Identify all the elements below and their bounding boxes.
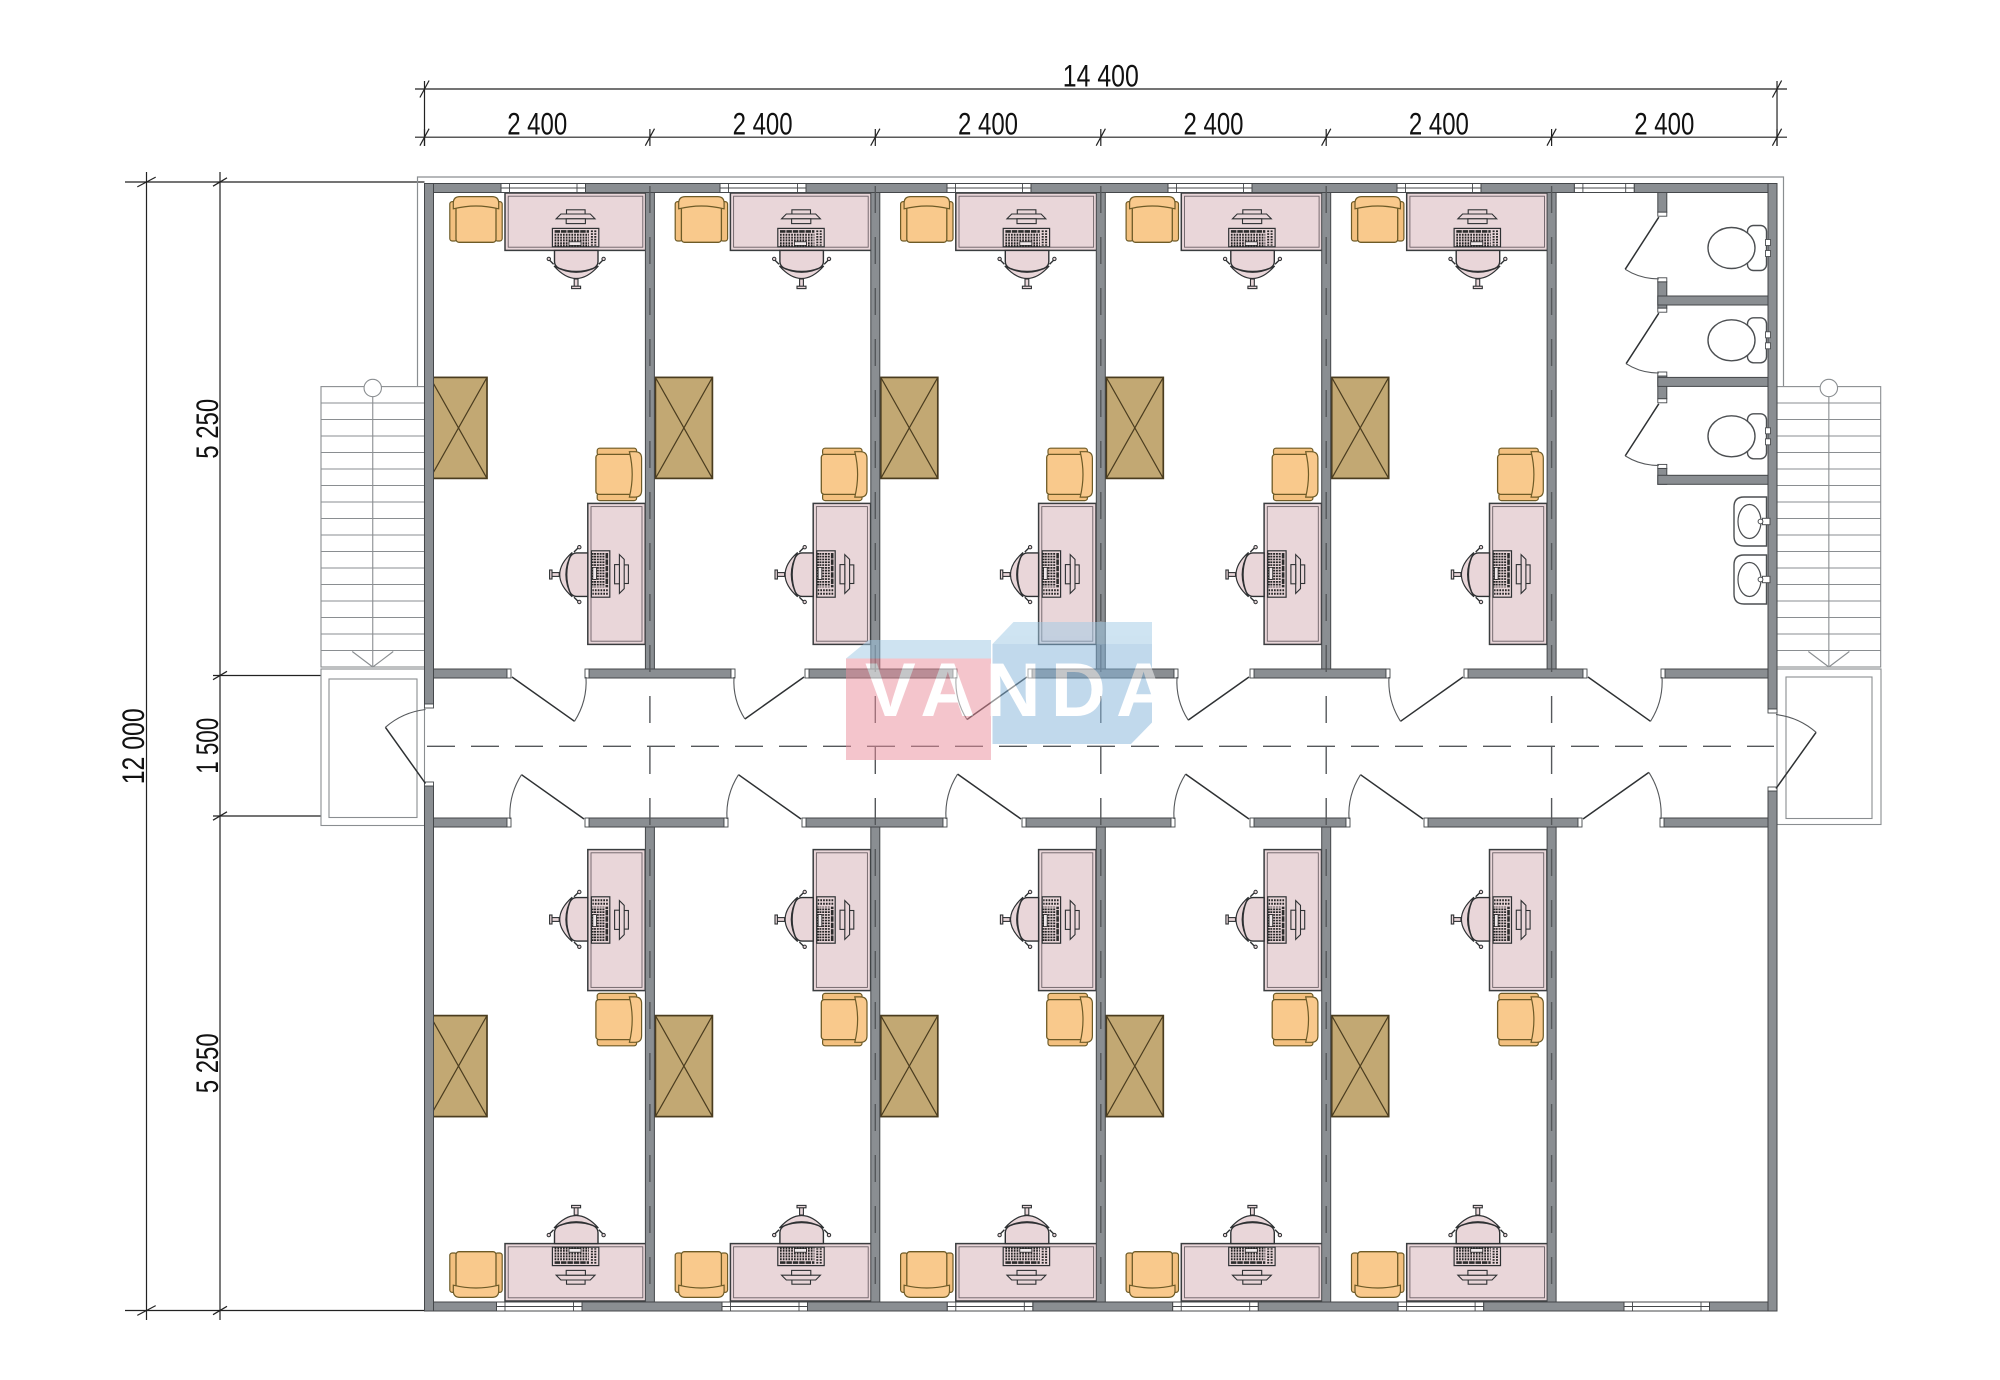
svg-text:14 400: 14 400 [1063, 59, 1139, 94]
svg-text:2 400: 2 400 [1634, 107, 1694, 142]
svg-text:2 400: 2 400 [958, 107, 1018, 142]
svg-text:2 400: 2 400 [733, 107, 793, 142]
svg-text:2 400: 2 400 [507, 107, 567, 142]
svg-text:5 250: 5 250 [190, 399, 225, 459]
svg-text:5 250: 5 250 [190, 1033, 225, 1093]
svg-text:2 400: 2 400 [1409, 107, 1469, 142]
svg-text:12 000: 12 000 [116, 708, 151, 784]
svg-text:1 500: 1 500 [190, 718, 225, 774]
svg-text:2 400: 2 400 [1184, 107, 1244, 142]
